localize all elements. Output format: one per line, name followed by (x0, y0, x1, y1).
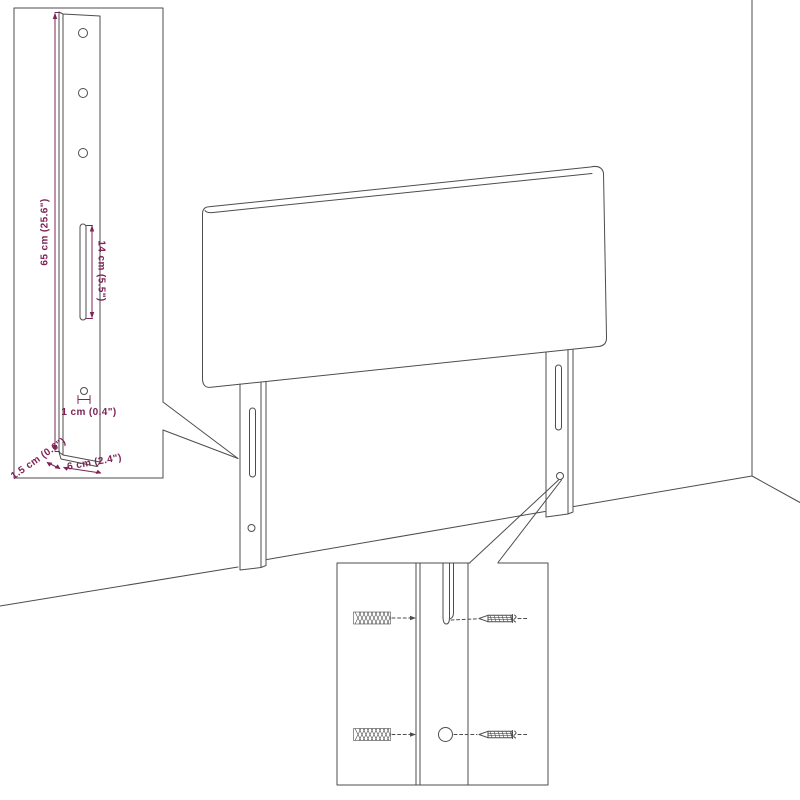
floor-line-left (0, 567, 238, 606)
leg-hole-closeup (439, 728, 453, 742)
leg-bracket-drawing (59, 12, 100, 467)
leg-hole (557, 473, 564, 480)
dimension-height-label: 65 cm (25.6") (40, 198, 51, 265)
leader-arrow (410, 732, 416, 737)
headboard-top-seam (205, 174, 592, 213)
dimension-slot-line (87, 226, 93, 319)
dimension-hole-label: 1 cm (0.4") (61, 407, 116, 418)
inset-mounting-detail (337, 563, 548, 785)
floor-line-near-corner (574, 476, 752, 507)
mounting-hole (79, 149, 88, 158)
callout-lines-left (163, 402, 238, 459)
dimension-hole-bracket (78, 396, 90, 404)
inset-bracket-detail: 65 cm (25.6") 14 cm (5.5") 1 cm (0.4") 1… (9, 8, 163, 482)
dimension-slot-label: 14 cm (5.5") (96, 240, 107, 301)
assembly-diagram: 65 cm (25.6") 14 cm (5.5") 1 cm (0.4") 1… (0, 0, 800, 800)
anchor-hole (81, 388, 88, 395)
leg-slot (556, 365, 562, 430)
leader-arrow (410, 616, 416, 621)
floor-line-middle (267, 512, 545, 560)
dimension-arrow (53, 13, 57, 20)
headboard-right-leg (546, 350, 573, 518)
mounting-hole (79, 29, 88, 38)
leg-hole (248, 525, 255, 532)
wall-plug-icon (354, 612, 391, 624)
dimension-thickness-label: 1.5 cm (0.6") (9, 436, 68, 482)
leg-strip-closeup (416, 563, 468, 785)
floor-line-right (752, 476, 800, 503)
leg-slot (250, 408, 256, 477)
mounting-hole (79, 89, 88, 98)
room-lines (0, 0, 800, 606)
leg-edges (240, 382, 266, 571)
screw-icon (479, 615, 528, 623)
dimension-width-label: 6 cm (2.4") (66, 452, 122, 472)
leg-slot-inner-line (451, 563, 454, 619)
leg-edges (546, 350, 573, 518)
bracket-dimensions: 65 cm (25.6") 14 cm (5.5") 1 cm (0.4") 1… (9, 13, 123, 482)
headboard (203, 166, 607, 570)
wall-plug-icon (354, 729, 391, 741)
callout-lines-right (470, 480, 562, 563)
dimension-arrow (90, 312, 94, 319)
assembly-diagram-page: 65 cm (25.6") 14 cm (5.5") 1 cm (0.4") 1… (0, 0, 800, 800)
leg-strip-edges (416, 563, 468, 785)
adjustment-slot (80, 224, 86, 320)
screw-icon (479, 731, 528, 739)
headboard-left-leg (240, 382, 266, 571)
dimension-arrow (96, 470, 102, 474)
leg-slot-closeup (443, 563, 450, 624)
leader-lines (392, 616, 477, 737)
